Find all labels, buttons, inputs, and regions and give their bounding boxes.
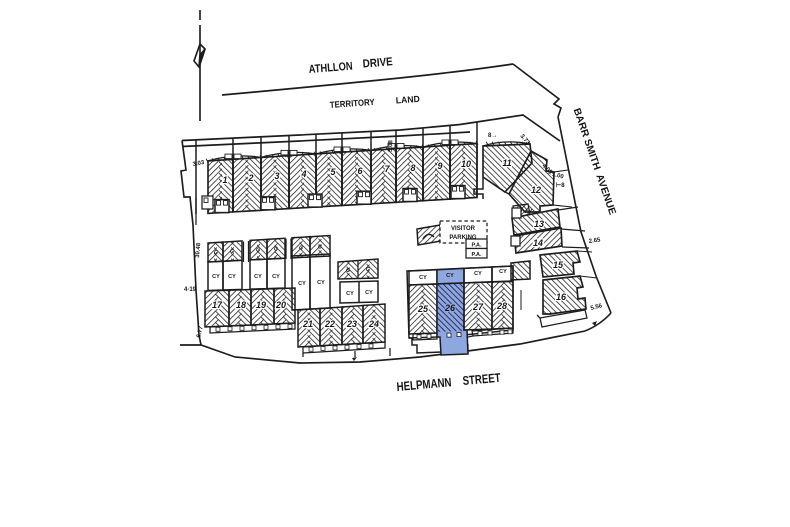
svg-text:G: G <box>214 250 218 256</box>
svg-text:G: G <box>299 245 303 251</box>
svg-text:ATHLLON: ATHLLON <box>308 61 353 76</box>
svg-text:3: 3 <box>274 171 279 181</box>
svg-text:CY: CY <box>228 274 236 280</box>
svg-text:12: 12 <box>531 185 541 195</box>
svg-text:1: 1 <box>222 175 227 185</box>
svg-text:13: 13 <box>534 219 544 229</box>
svg-text:9: 9 <box>437 161 442 171</box>
svg-text:25: 25 <box>417 304 429 314</box>
svg-text:21: 21 <box>302 319 313 329</box>
svg-text:16: 16 <box>556 292 567 302</box>
svg-text:19: 19 <box>256 300 266 310</box>
svg-text:14: 14 <box>533 238 543 248</box>
svg-text:TERRITORY: TERRITORY <box>329 97 375 110</box>
svg-text:P.A.: P.A. <box>472 252 482 258</box>
svg-text:DRIVE: DRIVE <box>362 56 393 70</box>
svg-text:G: G <box>256 248 260 254</box>
svg-text:CY: CY <box>446 273 454 279</box>
svg-text:CY: CY <box>298 281 306 287</box>
svg-text:CY: CY <box>365 290 373 296</box>
svg-text:P.A.: P.A. <box>472 243 482 249</box>
svg-text:CY: CY <box>254 274 262 280</box>
svg-text:2.65: 2.65 <box>588 237 601 245</box>
svg-text:5.08: 5.08 <box>388 140 394 153</box>
svg-text:5.56: 5.56 <box>590 303 603 312</box>
svg-text:20: 20 <box>275 300 286 310</box>
svg-text:22: 22 <box>324 319 335 329</box>
svg-text:LAND: LAND <box>395 94 420 106</box>
svg-text:18: 18 <box>236 300 246 310</box>
svg-text:2: 2 <box>247 173 253 183</box>
svg-text:11: 11 <box>502 158 511 168</box>
svg-text:G: G <box>346 268 350 274</box>
svg-text:30.48: 30.48 <box>195 242 202 258</box>
svg-text:CY: CY <box>499 269 507 275</box>
svg-text:27: 27 <box>472 302 484 312</box>
svg-text:CY: CY <box>346 291 354 297</box>
svg-text:15: 15 <box>553 260 564 270</box>
svg-text:⊢8: ⊢8 <box>556 181 565 189</box>
svg-text:4·19: 4·19 <box>184 287 197 293</box>
svg-text:G: G <box>366 267 370 273</box>
svg-text:4: 4 <box>300 169 306 179</box>
svg-text:G: G <box>230 249 234 255</box>
svg-text:CY: CY <box>272 274 280 280</box>
svg-text:HELPMANN: HELPMANN <box>396 375 452 394</box>
svg-text:CY: CY <box>474 271 482 277</box>
svg-text:CY: CY <box>317 280 325 286</box>
svg-text:26: 26 <box>444 303 456 313</box>
svg-text:3.03: 3.03 <box>192 160 205 168</box>
svg-text:G: G <box>318 244 322 250</box>
svg-text:BARR SMITH AVENUE: BARR SMITH AVENUE <box>571 107 618 217</box>
svg-text:8→: 8→ <box>488 133 497 139</box>
svg-text:8: 8 <box>410 163 415 173</box>
svg-text:CY: CY <box>419 275 427 281</box>
svg-text:CY: CY <box>212 274 220 280</box>
svg-text:28: 28 <box>496 301 507 311</box>
svg-text:17: 17 <box>212 300 223 310</box>
svg-text:24: 24 <box>368 319 379 329</box>
svg-text:G: G <box>274 247 278 253</box>
svg-text:VISITOR: VISITOR <box>451 226 476 232</box>
svg-text:10: 10 <box>461 159 471 169</box>
svg-text:STREET: STREET <box>462 371 501 388</box>
svg-text:6.77: 6.77 <box>196 325 205 338</box>
svg-text:23: 23 <box>346 319 357 329</box>
